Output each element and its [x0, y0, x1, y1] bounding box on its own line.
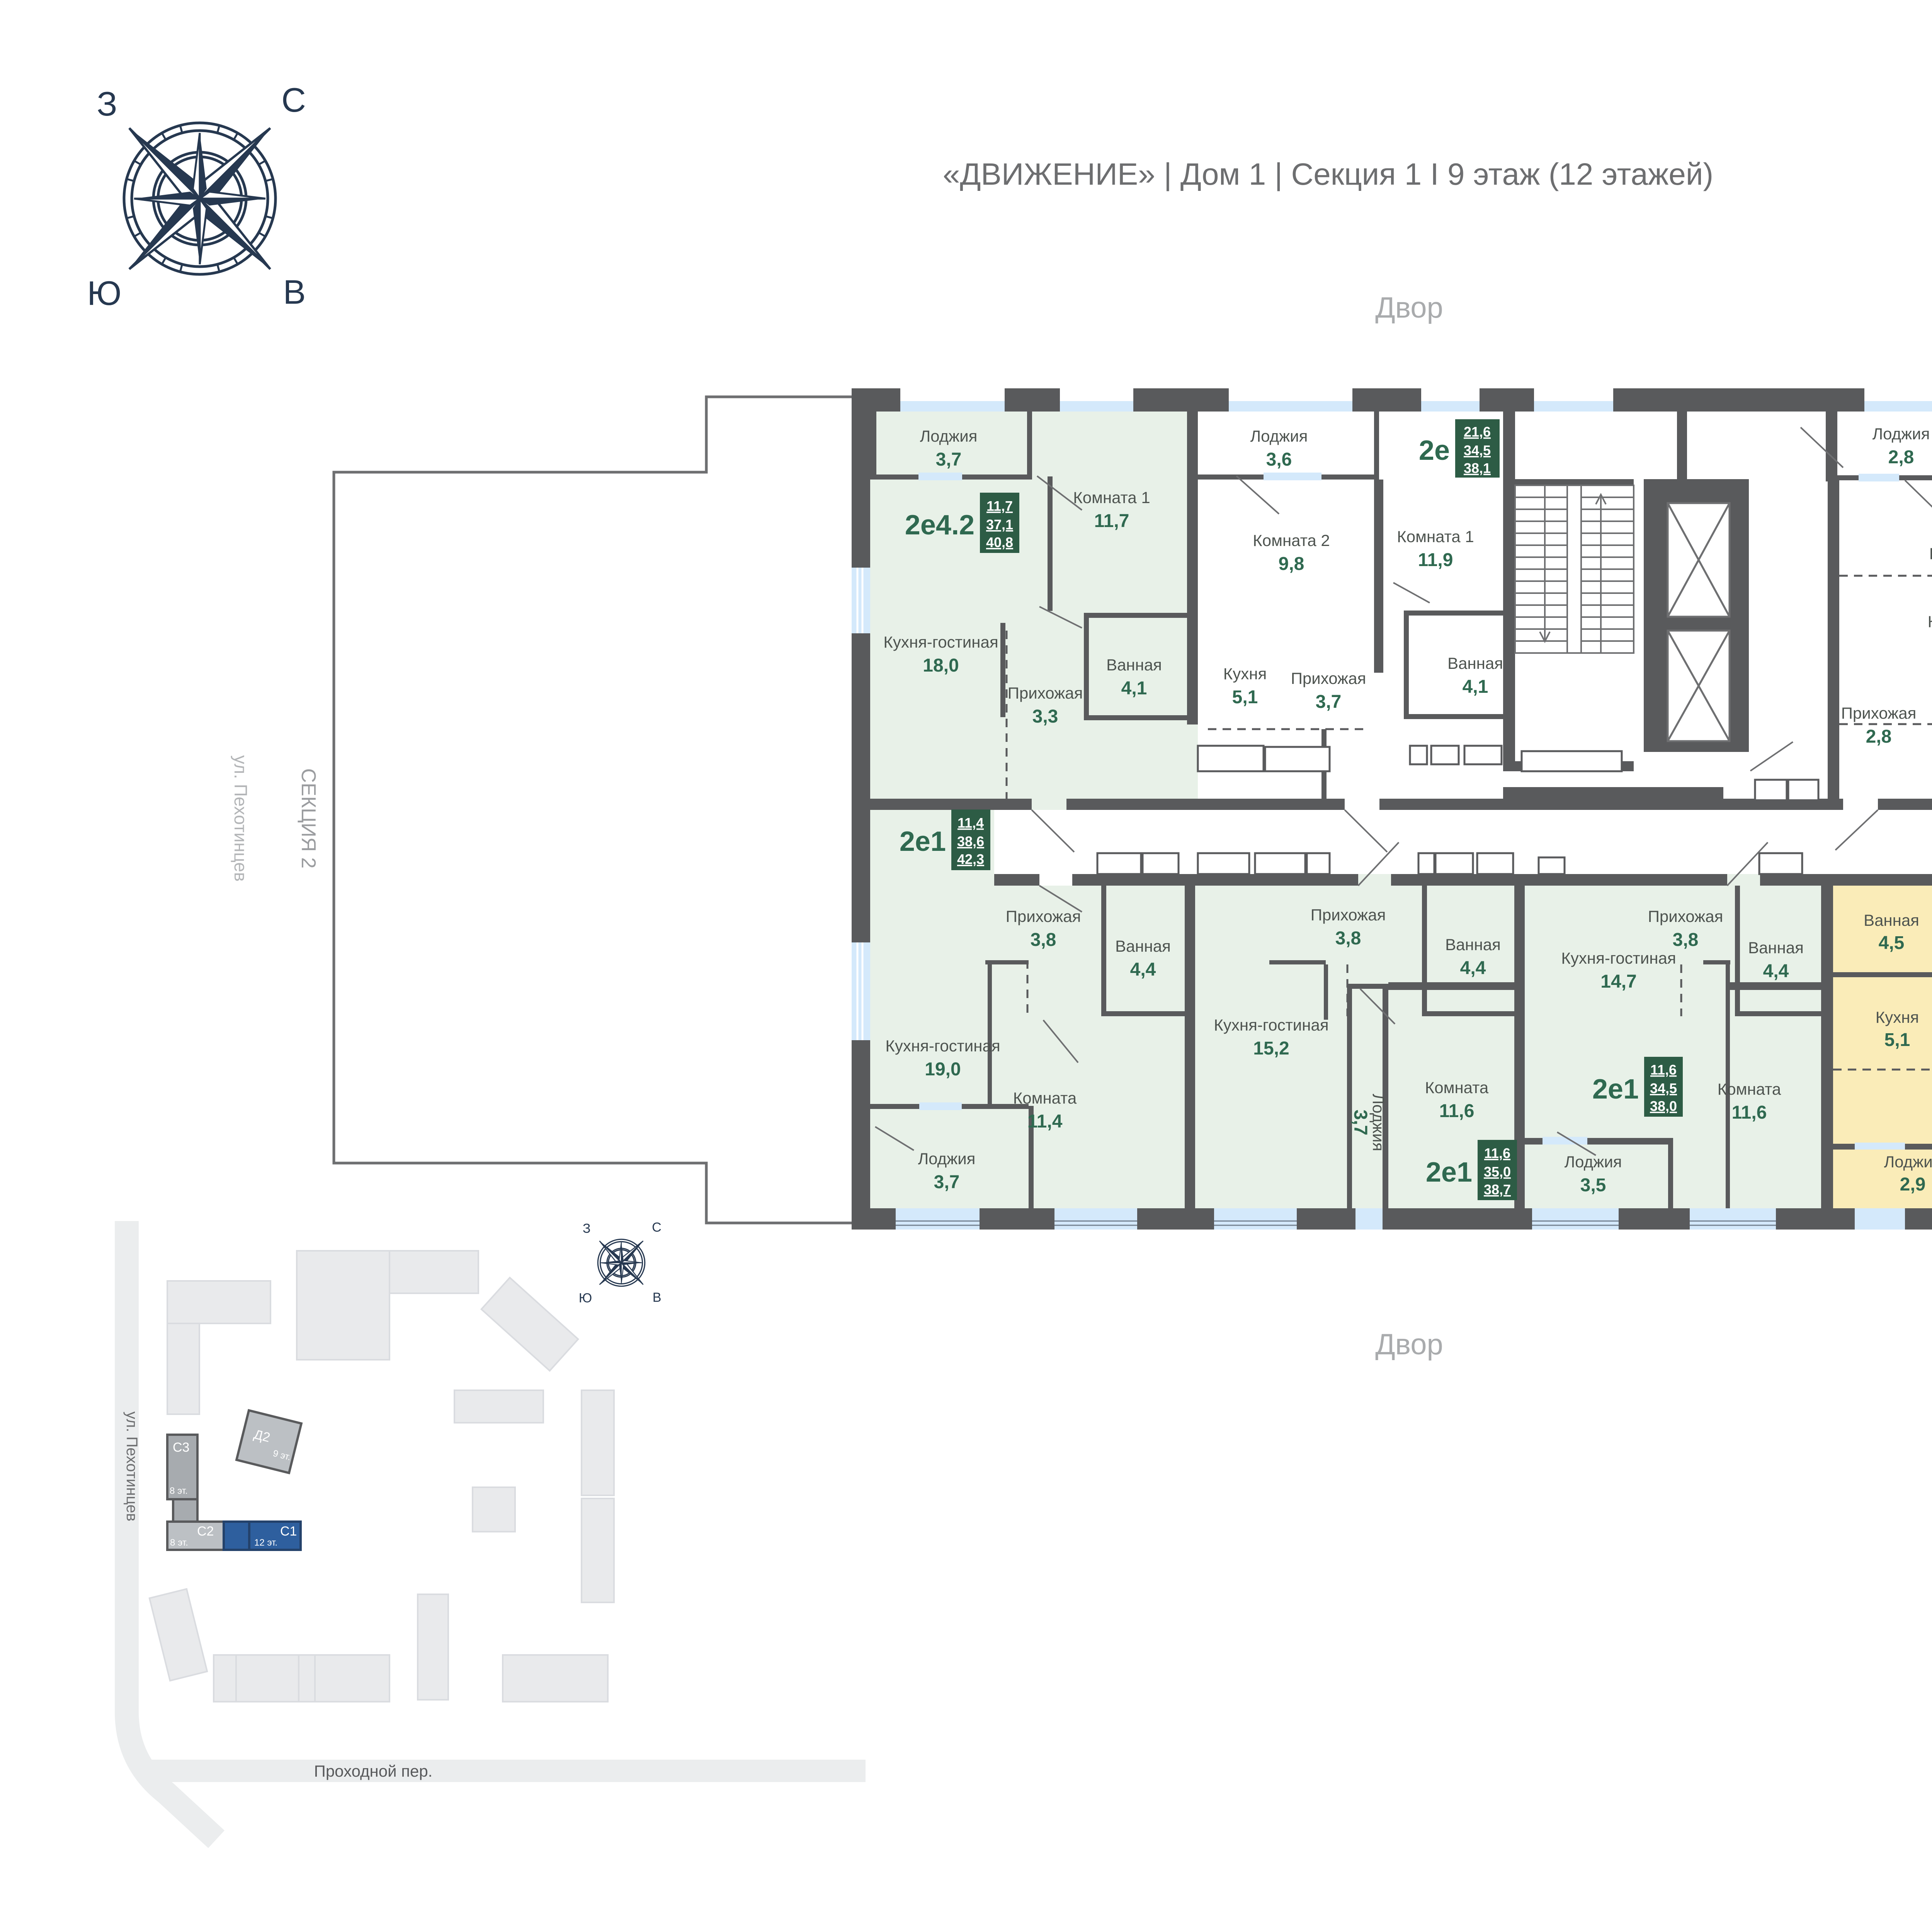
svg-text:38,0: 38,0 — [1650, 1098, 1677, 1114]
svg-text:Прихожая: Прихожая — [1648, 907, 1723, 925]
svg-text:Проходной пер.: Проходной пер. — [314, 1762, 433, 1780]
svg-text:Прихожая: Прихожая — [1006, 907, 1081, 925]
svg-text:Ванная: Ванная — [1864, 911, 1919, 929]
svg-text:Ванная: Ванная — [1748, 939, 1804, 957]
svg-text:4,1: 4,1 — [1121, 678, 1147, 699]
svg-text:СЕКЦИЯ 2: СЕКЦИЯ 2 — [297, 768, 320, 868]
svg-text:ул. Пехотинцев: ул. Пехотинцев — [231, 755, 251, 881]
svg-text:11,6: 11,6 — [1439, 1101, 1475, 1121]
svg-text:5,1: 5,1 — [1232, 687, 1258, 707]
svg-text:3,6: 3,6 — [1266, 449, 1292, 470]
svg-text:Лоджия: Лоджия — [1884, 1153, 1932, 1171]
svg-text:11,6: 11,6 — [1484, 1145, 1510, 1161]
svg-text:3,8: 3,8 — [1335, 928, 1361, 949]
svg-text:Кухня-гостиная: Кухня-гостиная — [885, 1037, 1000, 1055]
svg-text:2,8: 2,8 — [1866, 726, 1892, 747]
svg-text:Ю: Ю — [87, 274, 122, 312]
svg-text:4,4: 4,4 — [1130, 959, 1156, 980]
svg-text:35,0: 35,0 — [1484, 1164, 1511, 1180]
svg-text:2е1: 2е1 — [1426, 1157, 1472, 1188]
svg-text:19,0: 19,0 — [925, 1059, 961, 1080]
svg-text:38,7: 38,7 — [1484, 1182, 1511, 1197]
svg-text:Ванная: Ванная — [1445, 935, 1501, 954]
svg-text:4,4: 4,4 — [1763, 961, 1789, 981]
svg-text:Комната: Комната — [1425, 1078, 1489, 1097]
svg-text:4,1: 4,1 — [1463, 677, 1488, 697]
svg-text:Лоджия: Лоджия — [1872, 425, 1930, 443]
svg-text:З: З — [97, 85, 117, 123]
svg-text:Комната 1: Комната 1 — [1397, 527, 1474, 546]
svg-text:18,0: 18,0 — [923, 655, 959, 676]
svg-text:ул. Пехотинцев: ул. Пехотинцев — [123, 1412, 140, 1521]
svg-text:Лоджия: Лоджия — [1369, 1094, 1388, 1151]
svg-text:2е1: 2е1 — [1592, 1074, 1639, 1105]
svg-text:Лоджия: Лоджия — [918, 1150, 976, 1168]
svg-text:3,3: 3,3 — [1032, 706, 1058, 727]
svg-text:С2: С2 — [197, 1524, 214, 1539]
svg-text:21,6: 21,6 — [1464, 424, 1491, 440]
svg-text:3,7: 3,7 — [936, 449, 962, 470]
svg-text:12 эт.: 12 эт. — [254, 1537, 277, 1548]
svg-text:Кухня: Кухня — [1223, 665, 1267, 683]
svg-text:5,1: 5,1 — [1884, 1030, 1910, 1050]
svg-text:Прихожая: Прихожая — [1008, 684, 1083, 702]
svg-text:14,7: 14,7 — [1600, 971, 1636, 992]
svg-text:3,8: 3,8 — [1031, 930, 1056, 950]
svg-text:Кухня-гостиная: Кухня-гостиная — [1214, 1016, 1328, 1034]
svg-text:Ю: Ю — [579, 1291, 592, 1305]
svg-text:4,4: 4,4 — [1460, 958, 1486, 978]
svg-text:40,8: 40,8 — [986, 534, 1013, 550]
svg-text:8 эт.: 8 эт. — [170, 1537, 188, 1548]
svg-text:В: В — [653, 1290, 662, 1305]
svg-text:34,5: 34,5 — [1464, 442, 1491, 458]
svg-text:С: С — [281, 81, 306, 119]
svg-text:3,7: 3,7 — [934, 1172, 960, 1192]
svg-text:11,6: 11,6 — [1732, 1102, 1767, 1123]
svg-text:2е4.2: 2е4.2 — [905, 510, 975, 541]
svg-text:Двор: Двор — [1375, 1328, 1443, 1361]
svg-text:Кухня-гостиная: Кухня-гостиная — [883, 633, 998, 651]
svg-text:В: В — [283, 273, 306, 311]
svg-text:4,5: 4,5 — [1879, 933, 1905, 953]
svg-text:11,4: 11,4 — [957, 815, 984, 831]
svg-text:38,6: 38,6 — [957, 833, 984, 849]
svg-text:34,5: 34,5 — [1650, 1080, 1677, 1096]
svg-text:Лоджия: Лоджия — [920, 427, 978, 445]
svg-text:«ДВИЖЕНИЕ» | Дом 1 | Секция 1: «ДВИЖЕНИЕ» | Дом 1 | Секция 1 I 9 этаж (… — [943, 157, 1713, 191]
svg-text:3,7: 3,7 — [1316, 692, 1342, 712]
svg-text:2,8: 2,8 — [1888, 447, 1914, 468]
svg-text:Ванная: Ванная — [1447, 654, 1503, 672]
svg-text:С1: С1 — [280, 1524, 297, 1539]
svg-text:Прихожая: Прихожая — [1311, 906, 1386, 924]
svg-text:Комната 1: Комната 1 — [1073, 488, 1150, 507]
svg-text:37,1: 37,1 — [986, 517, 1013, 532]
svg-text:Прихожая: Прихожая — [1841, 704, 1917, 722]
svg-text:3,5: 3,5 — [1580, 1175, 1606, 1196]
svg-text:8 эт.: 8 эт. — [170, 1486, 188, 1496]
svg-text:9,8: 9,8 — [1279, 554, 1304, 574]
svg-text:З: З — [583, 1221, 591, 1236]
svg-text:Лоджия: Лоджия — [1565, 1153, 1622, 1171]
svg-text:Ванная: Ванная — [1106, 656, 1162, 674]
svg-text:Кухня-гостиная: Кухня-гостиная — [1561, 949, 1676, 967]
svg-text:15,2: 15,2 — [1253, 1038, 1289, 1059]
svg-text:С3: С3 — [173, 1440, 189, 1455]
svg-text:2е1: 2е1 — [900, 826, 946, 857]
svg-text:Комната 2: Комната 2 — [1253, 531, 1330, 549]
svg-text:11,6: 11,6 — [1650, 1062, 1677, 1078]
svg-text:2,9: 2,9 — [1900, 1174, 1926, 1195]
svg-text:Прихожая: Прихожая — [1291, 669, 1366, 687]
svg-text:Двор: Двор — [1375, 291, 1443, 324]
svg-text:Кухня: Кухня — [1928, 612, 1932, 631]
svg-text:Лоджия: Лоджия — [1250, 427, 1308, 445]
svg-text:11,4: 11,4 — [1027, 1111, 1063, 1132]
svg-text:Комната: Комната — [1718, 1080, 1781, 1098]
svg-text:Кухня: Кухня — [1876, 1008, 1919, 1026]
svg-text:Комната: Комната — [1013, 1089, 1077, 1107]
svg-text:С: С — [652, 1220, 662, 1235]
svg-text:2е: 2е — [1419, 435, 1450, 466]
svg-text:38,1: 38,1 — [1464, 460, 1491, 476]
svg-text:Комната: Комната — [1929, 544, 1932, 563]
svg-text:42,3: 42,3 — [957, 851, 984, 867]
svg-text:11,9: 11,9 — [1418, 550, 1453, 570]
svg-text:Ванная: Ванная — [1115, 937, 1171, 955]
svg-text:3,7: 3,7 — [1350, 1110, 1371, 1136]
svg-text:11,7: 11,7 — [1094, 511, 1129, 531]
svg-text:11,7: 11,7 — [986, 498, 1013, 514]
svg-text:3,8: 3,8 — [1673, 930, 1699, 950]
